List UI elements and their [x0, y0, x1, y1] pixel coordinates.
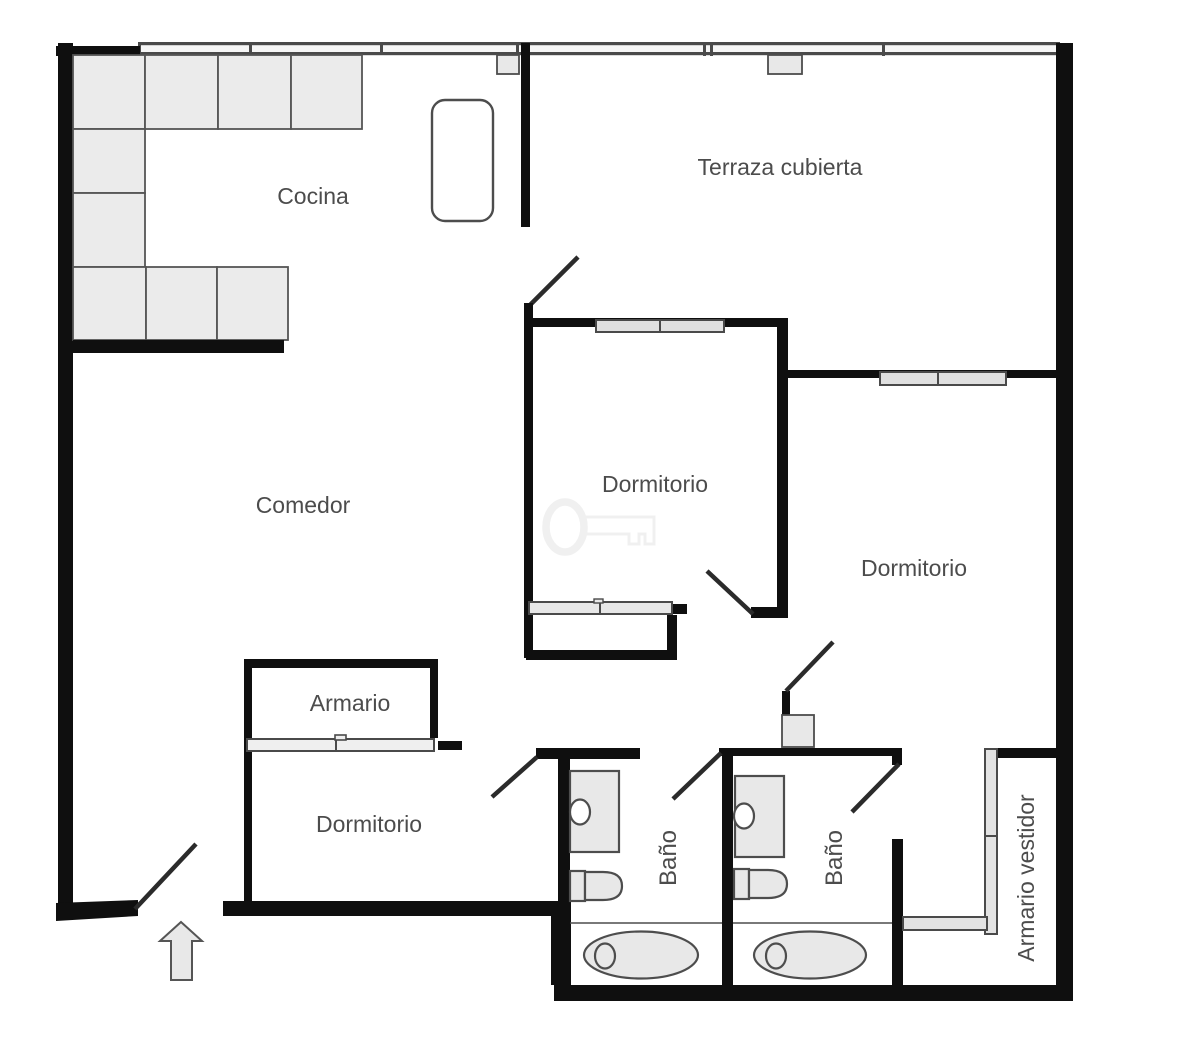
- svg-text:Armario: Armario: [310, 690, 391, 716]
- svg-text:Baño: Baño: [655, 830, 682, 886]
- svg-text:Comedor: Comedor: [256, 492, 351, 518]
- svg-text:Dormitorio: Dormitorio: [316, 811, 422, 837]
- svg-text:Baño: Baño: [821, 830, 848, 886]
- svg-text:Cocina: Cocina: [277, 183, 349, 209]
- svg-text:Armario vestidor: Armario vestidor: [1013, 794, 1039, 962]
- svg-text:Dormitorio: Dormitorio: [861, 555, 967, 581]
- svg-text:Dormitorio: Dormitorio: [602, 471, 708, 497]
- svg-text:Terraza cubierta: Terraza cubierta: [698, 154, 863, 180]
